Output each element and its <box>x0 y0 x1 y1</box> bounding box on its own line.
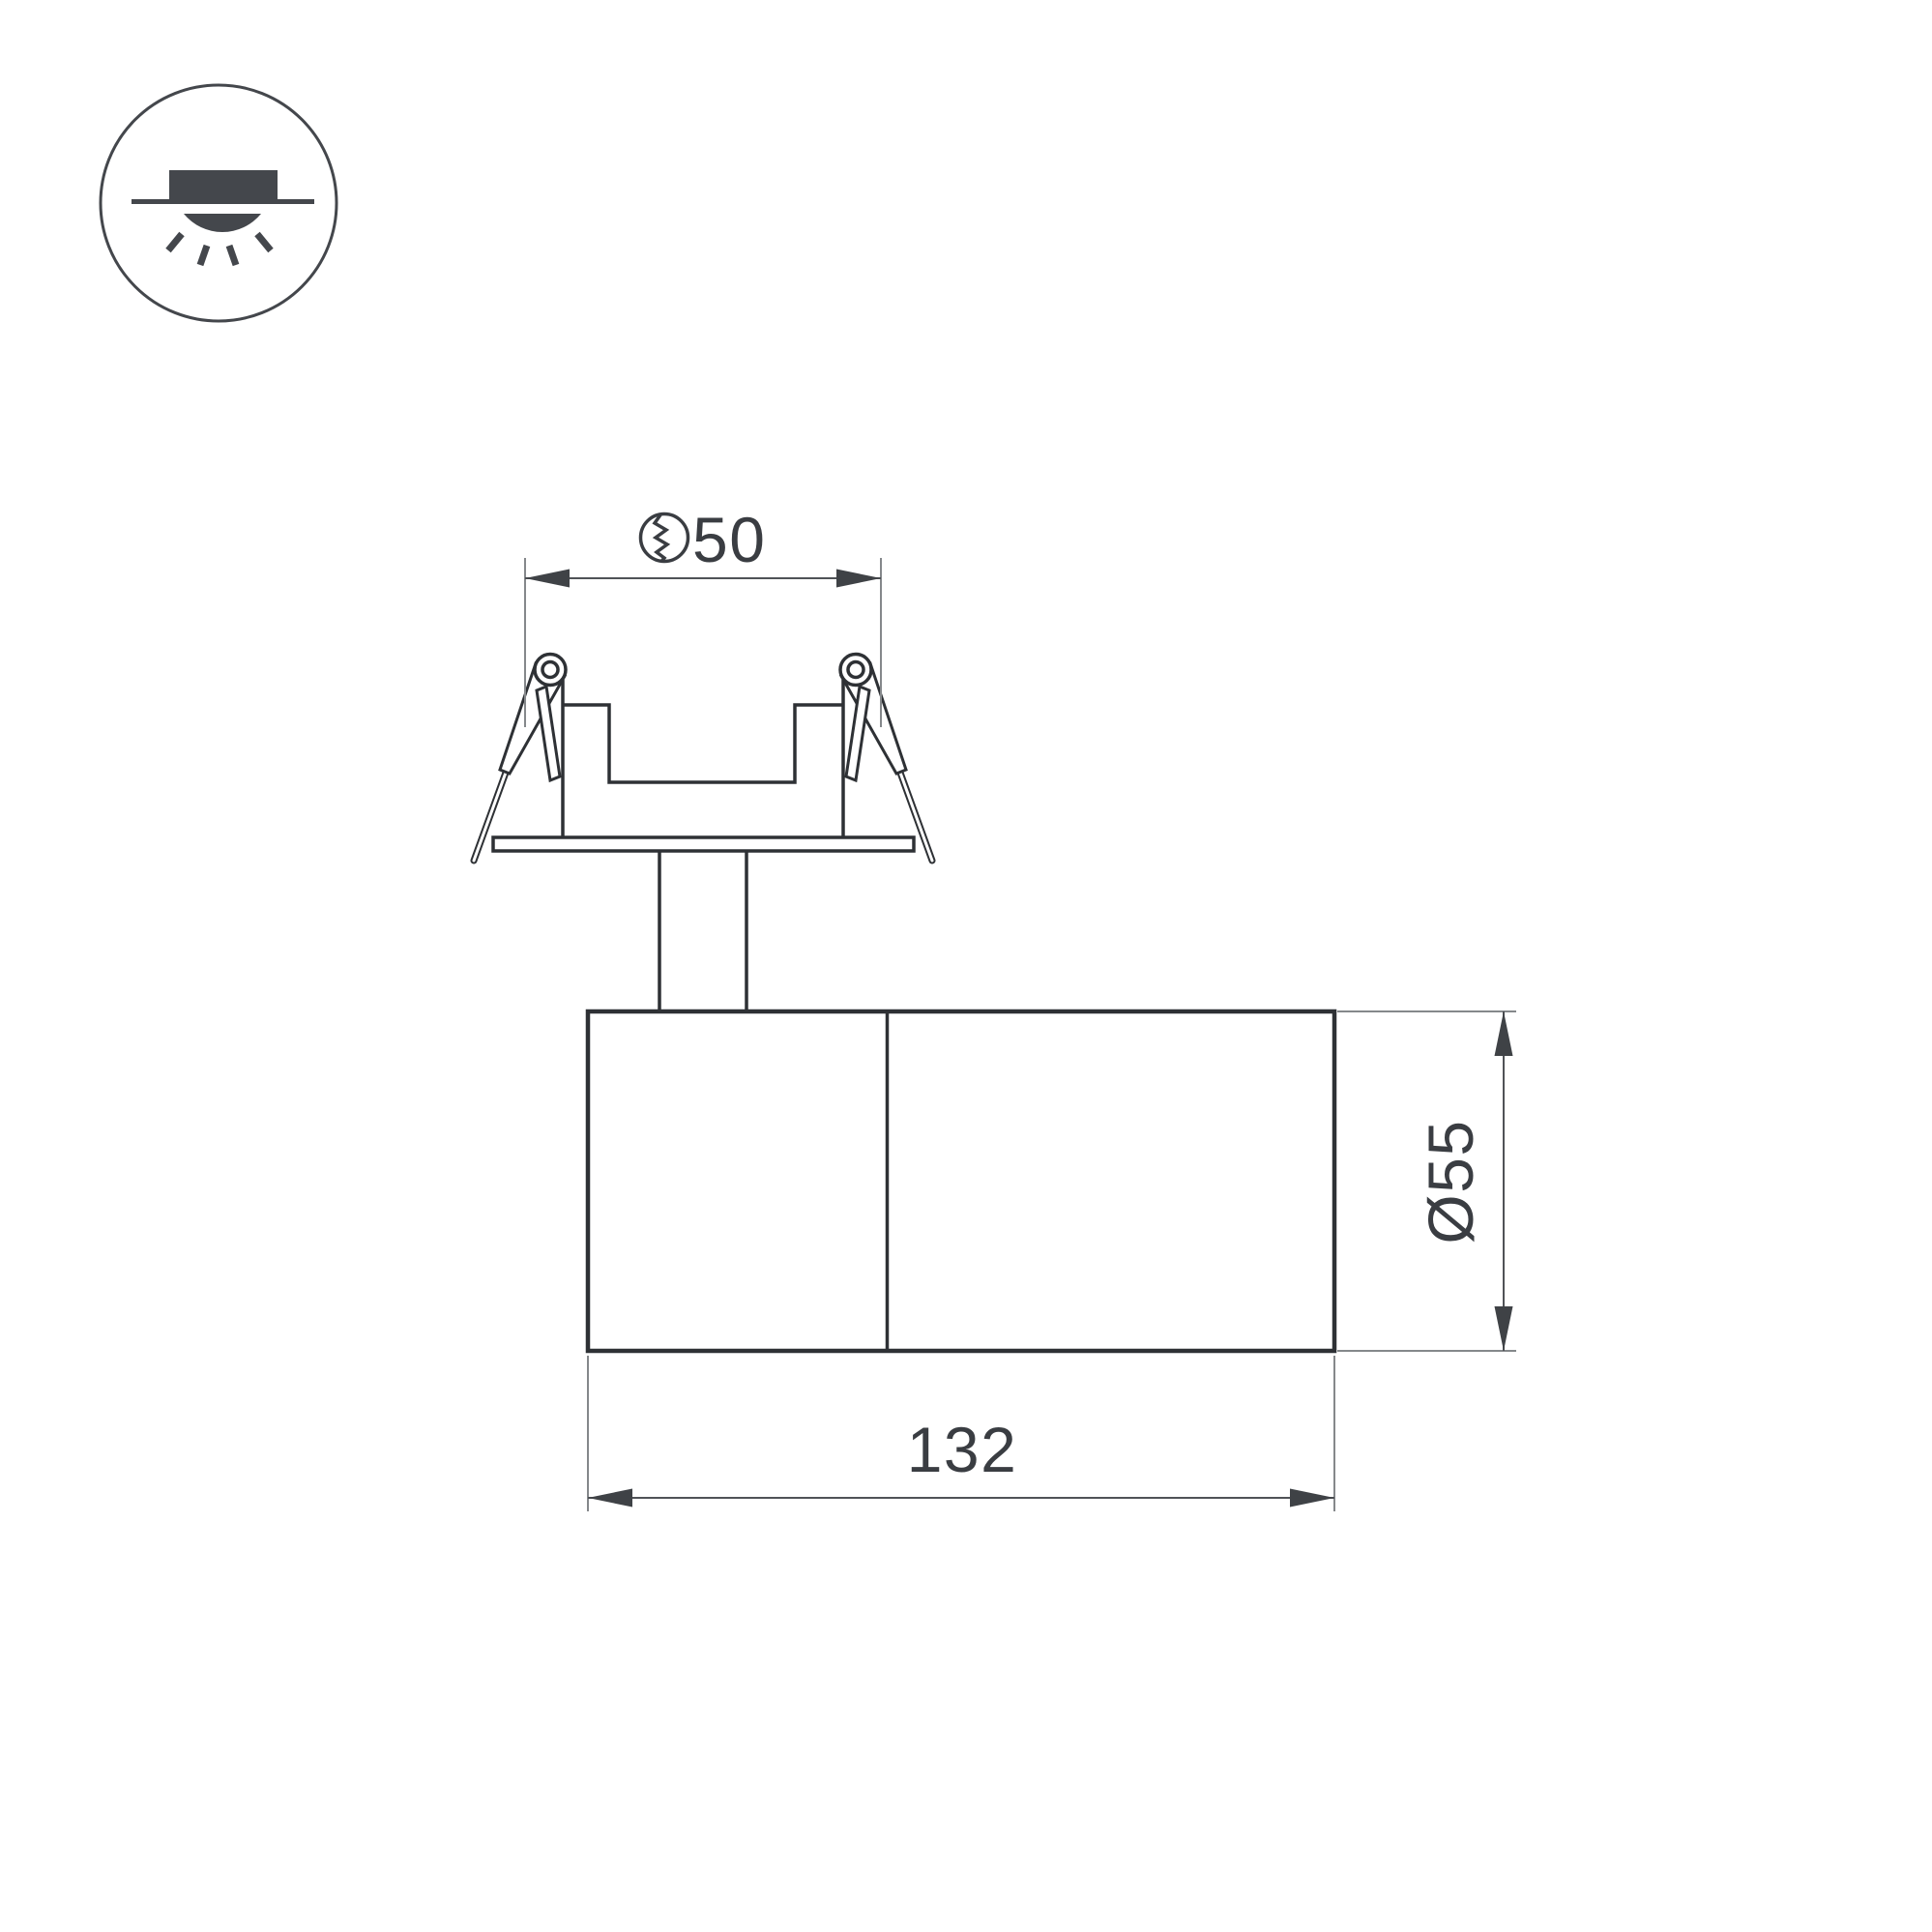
ring-channel <box>563 705 843 782</box>
clip-pivot-hole-right <box>848 662 864 678</box>
technical-drawing: 50 Ø55 132 <box>0 0 1932 1932</box>
fixture-housing-icon <box>169 170 278 199</box>
light-dome-icon <box>184 214 261 232</box>
length-dimension-label: 132 <box>907 1414 1018 1485</box>
clip-leg-left <box>537 687 560 780</box>
clip-leg-right <box>846 687 869 780</box>
cutout-dimension: 50 <box>525 504 881 727</box>
spot-body <box>588 852 1334 1351</box>
install-type-icon <box>101 85 337 321</box>
diameter-dimension: Ø55 <box>1337 1011 1516 1351</box>
arrow-down-icon <box>1495 1306 1513 1351</box>
cylinder-body <box>588 1011 1334 1351</box>
arrow-up-icon <box>1495 1011 1513 1056</box>
ceiling-line-icon <box>132 199 314 204</box>
arrow-right-icon <box>836 570 881 588</box>
cutout-symbol-icon <box>641 514 688 562</box>
diameter-dimension-label: Ø55 <box>1415 1119 1486 1244</box>
spring-clip-left <box>474 655 566 862</box>
spring-clip-right <box>840 655 932 862</box>
light-rays-icon <box>168 234 271 265</box>
trim-flange <box>493 837 914 851</box>
length-dimension: 132 <box>588 1356 1334 1511</box>
cutout-dimension-label: 50 <box>692 504 766 575</box>
arrow-left-icon <box>525 570 570 588</box>
clip-pivot-hole-left <box>542 662 558 678</box>
arrow-right-icon <box>1290 1489 1334 1508</box>
arrow-left-icon <box>588 1489 632 1508</box>
